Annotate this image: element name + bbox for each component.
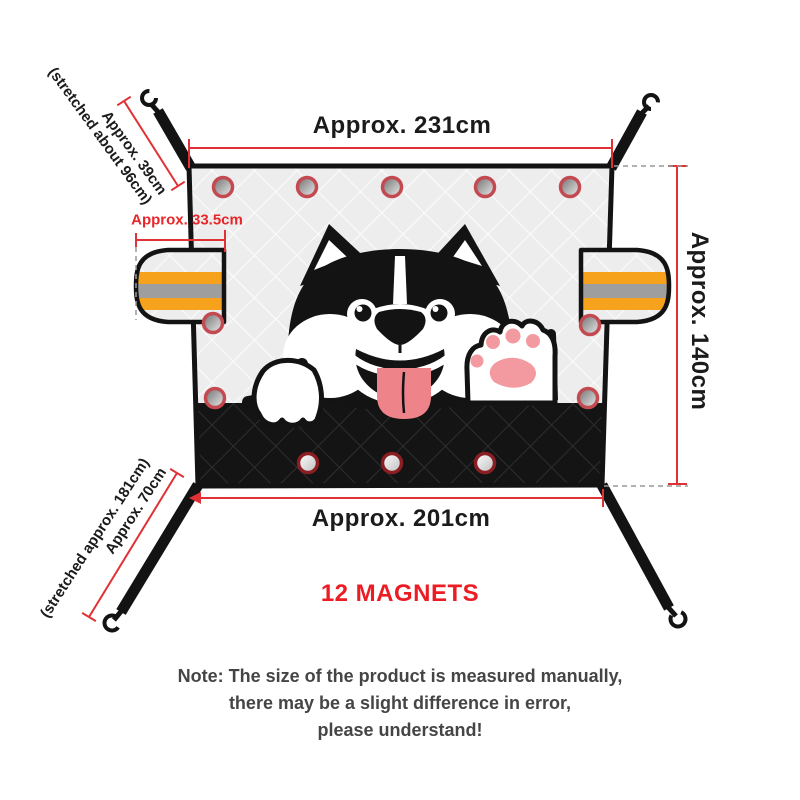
paw-pad: [526, 334, 540, 348]
hook-icon: [142, 91, 156, 105]
reflective-stripe-orange: [575, 298, 675, 310]
magnet-grommet: [206, 389, 225, 408]
paw-pad: [471, 355, 484, 368]
strap-bottom-right: [602, 485, 688, 629]
hook-icon: [644, 95, 658, 109]
magnet-grommet: [298, 178, 317, 197]
magnet-grommet: [299, 454, 318, 473]
magnet-grommet: [561, 178, 580, 197]
right-height-label: Approx. 140cm: [685, 232, 713, 411]
note-line-1: Note: The size of the product is measure…: [120, 663, 680, 690]
reflective-stripe-orange: [575, 272, 675, 284]
note-line-3: please understand!: [120, 717, 680, 744]
measurement-note: Note: The size of the product is measure…: [120, 663, 680, 744]
product-dimension-diagram: Approx. 231cm Approx. 140cm Approx. 201c…: [0, 0, 800, 800]
paw-pad: [506, 329, 521, 344]
magnet-grommet: [579, 389, 598, 408]
magnet-grommet: [383, 454, 402, 473]
magnet-grommet: [476, 178, 495, 197]
dog-pupil-left: [355, 305, 372, 322]
reflective-stripe-orange: [130, 298, 230, 310]
dog-pupil-right: [431, 305, 448, 322]
magnets-count-label: 12 MAGNETS: [321, 580, 479, 608]
dog-blaze: [393, 256, 407, 304]
dog-paw-left: [254, 360, 321, 425]
magnet-grommet: [476, 454, 495, 473]
left-mirror-flap: [130, 250, 230, 322]
magnet-grommet: [383, 178, 402, 197]
reflective-stripe-gray: [130, 284, 230, 298]
right-mirror-flap: [575, 250, 675, 322]
paw-pad: [486, 335, 500, 349]
reflective-stripe-gray: [575, 284, 675, 298]
strap-top-left: [142, 91, 191, 168]
flap-width-label: Approx. 33.5cm: [131, 212, 243, 229]
magnet-grommet: [214, 178, 233, 197]
reflective-stripe-orange: [130, 272, 230, 284]
note-line-2: there may be a slight difference in erro…: [120, 690, 680, 717]
magnet-grommet: [581, 316, 600, 335]
top-width-label: Approx. 231cm: [313, 112, 492, 140]
bottom-width-label: Approx. 201cm: [312, 505, 491, 533]
magnet-grommet: [204, 314, 223, 333]
strap-top-right: [611, 95, 658, 168]
